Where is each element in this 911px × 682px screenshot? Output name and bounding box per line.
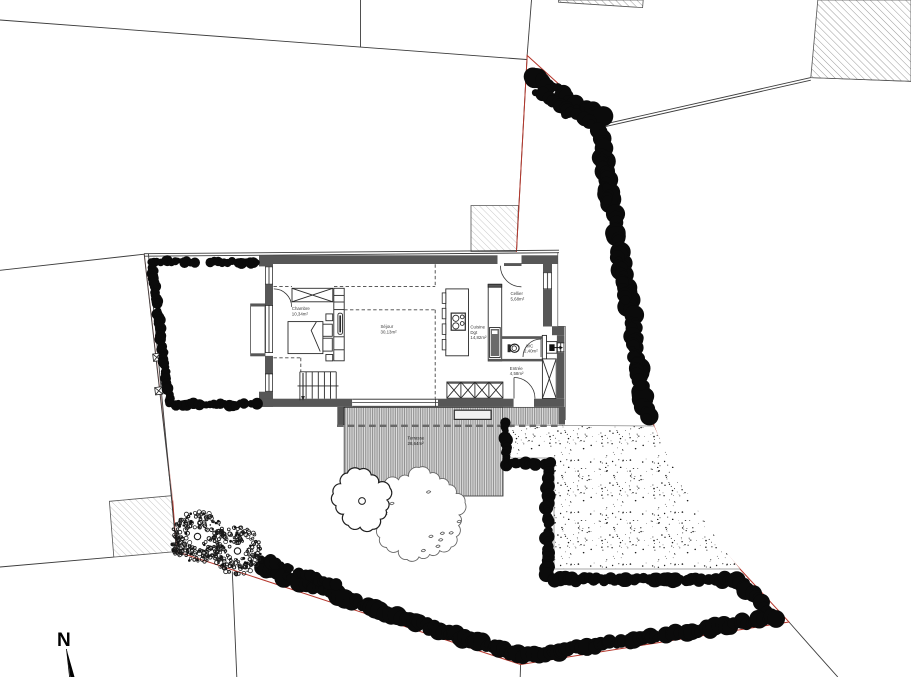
svg-text:4,58m²: 4,58m² <box>510 371 524 376</box>
svg-text:Terrasse: Terrasse <box>408 436 425 441</box>
svg-text:2,40m²: 2,40m² <box>524 348 538 353</box>
svg-text:10,34m²: 10,34m² <box>292 312 309 317</box>
svg-text:5,68m²: 5,68m² <box>511 296 525 301</box>
svg-text:Cuisine: Cuisine <box>470 325 485 330</box>
svg-text:Entrée: Entrée <box>510 366 523 371</box>
svg-text:N: N <box>57 630 71 651</box>
svg-text:30,13m²: 30,13m² <box>381 329 398 334</box>
svg-text:14,82m²: 14,82m² <box>470 335 487 340</box>
svg-text:28,64m²: 28,64m² <box>408 441 425 446</box>
svg-text:Chambre: Chambre <box>292 306 311 311</box>
svg-text:Dgt: Dgt <box>470 330 478 335</box>
svg-text:Séjour: Séjour <box>381 324 394 329</box>
svg-text:Cellier: Cellier <box>511 291 524 296</box>
